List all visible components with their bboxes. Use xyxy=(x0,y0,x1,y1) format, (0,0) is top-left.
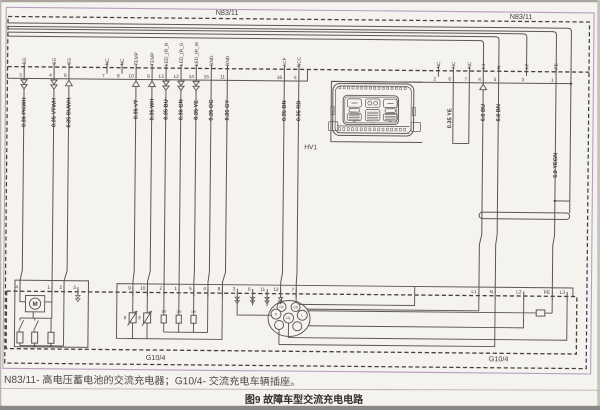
svg-text:PE: PE xyxy=(554,63,560,69)
svg-text:0.35 BUWH: 0.35 BUWH xyxy=(66,98,72,128)
svg-text:4: 4 xyxy=(478,77,481,83)
svg-text:G10/4: G10/4 xyxy=(489,354,509,363)
svg-text:L: L xyxy=(301,313,303,317)
svg-text:SG: SG xyxy=(67,58,73,65)
svg-text:6: 6 xyxy=(248,287,251,293)
svg-text:2: 2 xyxy=(59,285,62,291)
svg-text:14: 14 xyxy=(189,74,195,80)
svg-text:1W: 1W xyxy=(191,310,197,314)
svg-text:NC: NC xyxy=(120,58,126,66)
svg-text:TEMP: TEMP xyxy=(150,52,156,65)
svg-text:G10/4: G10/4 xyxy=(146,353,166,362)
svg-text:NCC: NCC xyxy=(297,56,303,67)
svg-text:0.35 YE: 0.35 YE xyxy=(194,100,200,120)
svg-text:0.35 OG: 0.35 OG xyxy=(209,99,215,120)
svg-text:16: 16 xyxy=(277,75,283,81)
svg-text:L1: L1 xyxy=(481,63,487,69)
svg-text:0.35 VT: 0.35 VT xyxy=(133,99,139,119)
svg-text:6.0 BN: 6.0 BN xyxy=(496,104,502,121)
svg-text:0.35 BU: 0.35 BU xyxy=(163,99,169,120)
svg-text:0.35 VTWH: 0.35 VTWH xyxy=(51,98,57,127)
svg-text:GND: GND xyxy=(225,55,231,66)
svg-text:0.35 WH: 0.35 WH xyxy=(149,99,155,121)
svg-text:15: 15 xyxy=(204,74,210,80)
svg-text:2: 2 xyxy=(159,286,162,292)
svg-text:PE: PE xyxy=(544,290,550,296)
svg-text:6.0 YEGN: 6.0 YEGN xyxy=(553,153,559,178)
svg-text:5: 5 xyxy=(294,75,297,81)
svg-text:0.36 PKWH: 0.36 PKWH xyxy=(21,97,27,127)
svg-text:3: 3 xyxy=(73,285,76,291)
svg-text:ACF: ACF xyxy=(282,57,288,67)
svg-text:10: 10 xyxy=(128,74,134,80)
svg-text:12: 12 xyxy=(273,287,279,293)
svg-text:L2: L2 xyxy=(524,64,530,70)
svg-text:3: 3 xyxy=(233,287,236,293)
svg-text:1W: 1W xyxy=(176,310,182,314)
svg-text:13: 13 xyxy=(158,74,164,80)
svg-text:N: N xyxy=(496,65,502,69)
svg-text:0.35 YE: 0.35 YE xyxy=(447,108,453,128)
svg-text:SG: SG xyxy=(22,57,28,64)
svg-text:TEMP: TEMP xyxy=(134,52,140,65)
svg-text:5: 5 xyxy=(494,77,497,83)
svg-text:LED_(R_W: LED_(R_W xyxy=(194,41,200,66)
svg-text:4: 4 xyxy=(203,286,206,292)
svg-text:NC: NC xyxy=(451,61,457,69)
svg-text:NC: NC xyxy=(105,58,111,66)
svg-text:M: M xyxy=(32,301,37,308)
svg-text:7: 7 xyxy=(464,77,467,83)
svg-text:3: 3 xyxy=(19,72,22,78)
svg-text:0.35 BN: 0.35 BN xyxy=(282,100,288,121)
svg-text:6: 6 xyxy=(448,77,451,83)
svg-text:LED_(R_R: LED_(R_R xyxy=(164,42,170,66)
svg-text:GND: GND xyxy=(209,55,215,66)
svg-text:HV1: HV1 xyxy=(304,144,317,151)
svg-text:8: 8 xyxy=(218,286,221,292)
svg-text:NC: NC xyxy=(467,61,473,69)
svg-text:9: 9 xyxy=(128,286,131,292)
svg-text:4: 4 xyxy=(49,73,52,79)
svg-text:11: 11 xyxy=(260,287,265,293)
svg-text:图9 故障车型交流充电电路: 图9 故障车型交流充电电路 xyxy=(245,393,364,406)
svg-text:N83/11: N83/11 xyxy=(216,8,239,17)
svg-text:9: 9 xyxy=(147,74,150,80)
svg-text:1: 1 xyxy=(174,286,177,292)
svg-text:0.36 GN: 0.36 GN xyxy=(178,99,184,120)
svg-text:CS: CS xyxy=(293,305,297,309)
svg-text:N83/11: N83/11 xyxy=(510,12,533,21)
svg-text:CP: CP xyxy=(279,305,283,309)
svg-text:2: 2 xyxy=(433,76,436,82)
svg-text:7: 7 xyxy=(292,287,295,293)
svg-text:10: 10 xyxy=(140,286,146,292)
svg-text:L2: L2 xyxy=(516,289,522,295)
svg-text:8: 8 xyxy=(117,73,120,79)
svg-text:0.36 GY: 0.36 GY xyxy=(225,100,231,121)
svg-text:6.0 BU: 6.0 BU xyxy=(481,104,487,121)
svg-text:12: 12 xyxy=(173,74,179,80)
svg-text:L3: L3 xyxy=(560,290,566,296)
svg-text:6: 6 xyxy=(64,73,67,79)
svg-text:4: 4 xyxy=(15,284,18,290)
svg-text:7: 7 xyxy=(102,73,105,79)
svg-text:1: 1 xyxy=(551,78,554,84)
svg-text:LED_(R_G: LED_(R_G xyxy=(179,42,185,66)
svg-text:1W: 1W xyxy=(161,310,167,314)
svg-text:5: 5 xyxy=(189,286,192,292)
svg-text:L1: L1 xyxy=(471,289,477,295)
svg-text:0.35 RD: 0.35 RD xyxy=(296,101,302,122)
svg-text:N: N xyxy=(490,289,494,295)
svg-text:1: 1 xyxy=(47,285,50,291)
svg-text:PE: PE xyxy=(286,316,290,320)
svg-text:11: 11 xyxy=(220,74,225,80)
svg-text:3: 3 xyxy=(521,77,524,83)
svg-text:NC: NC xyxy=(436,61,442,69)
svg-text:SG: SG xyxy=(52,57,58,64)
